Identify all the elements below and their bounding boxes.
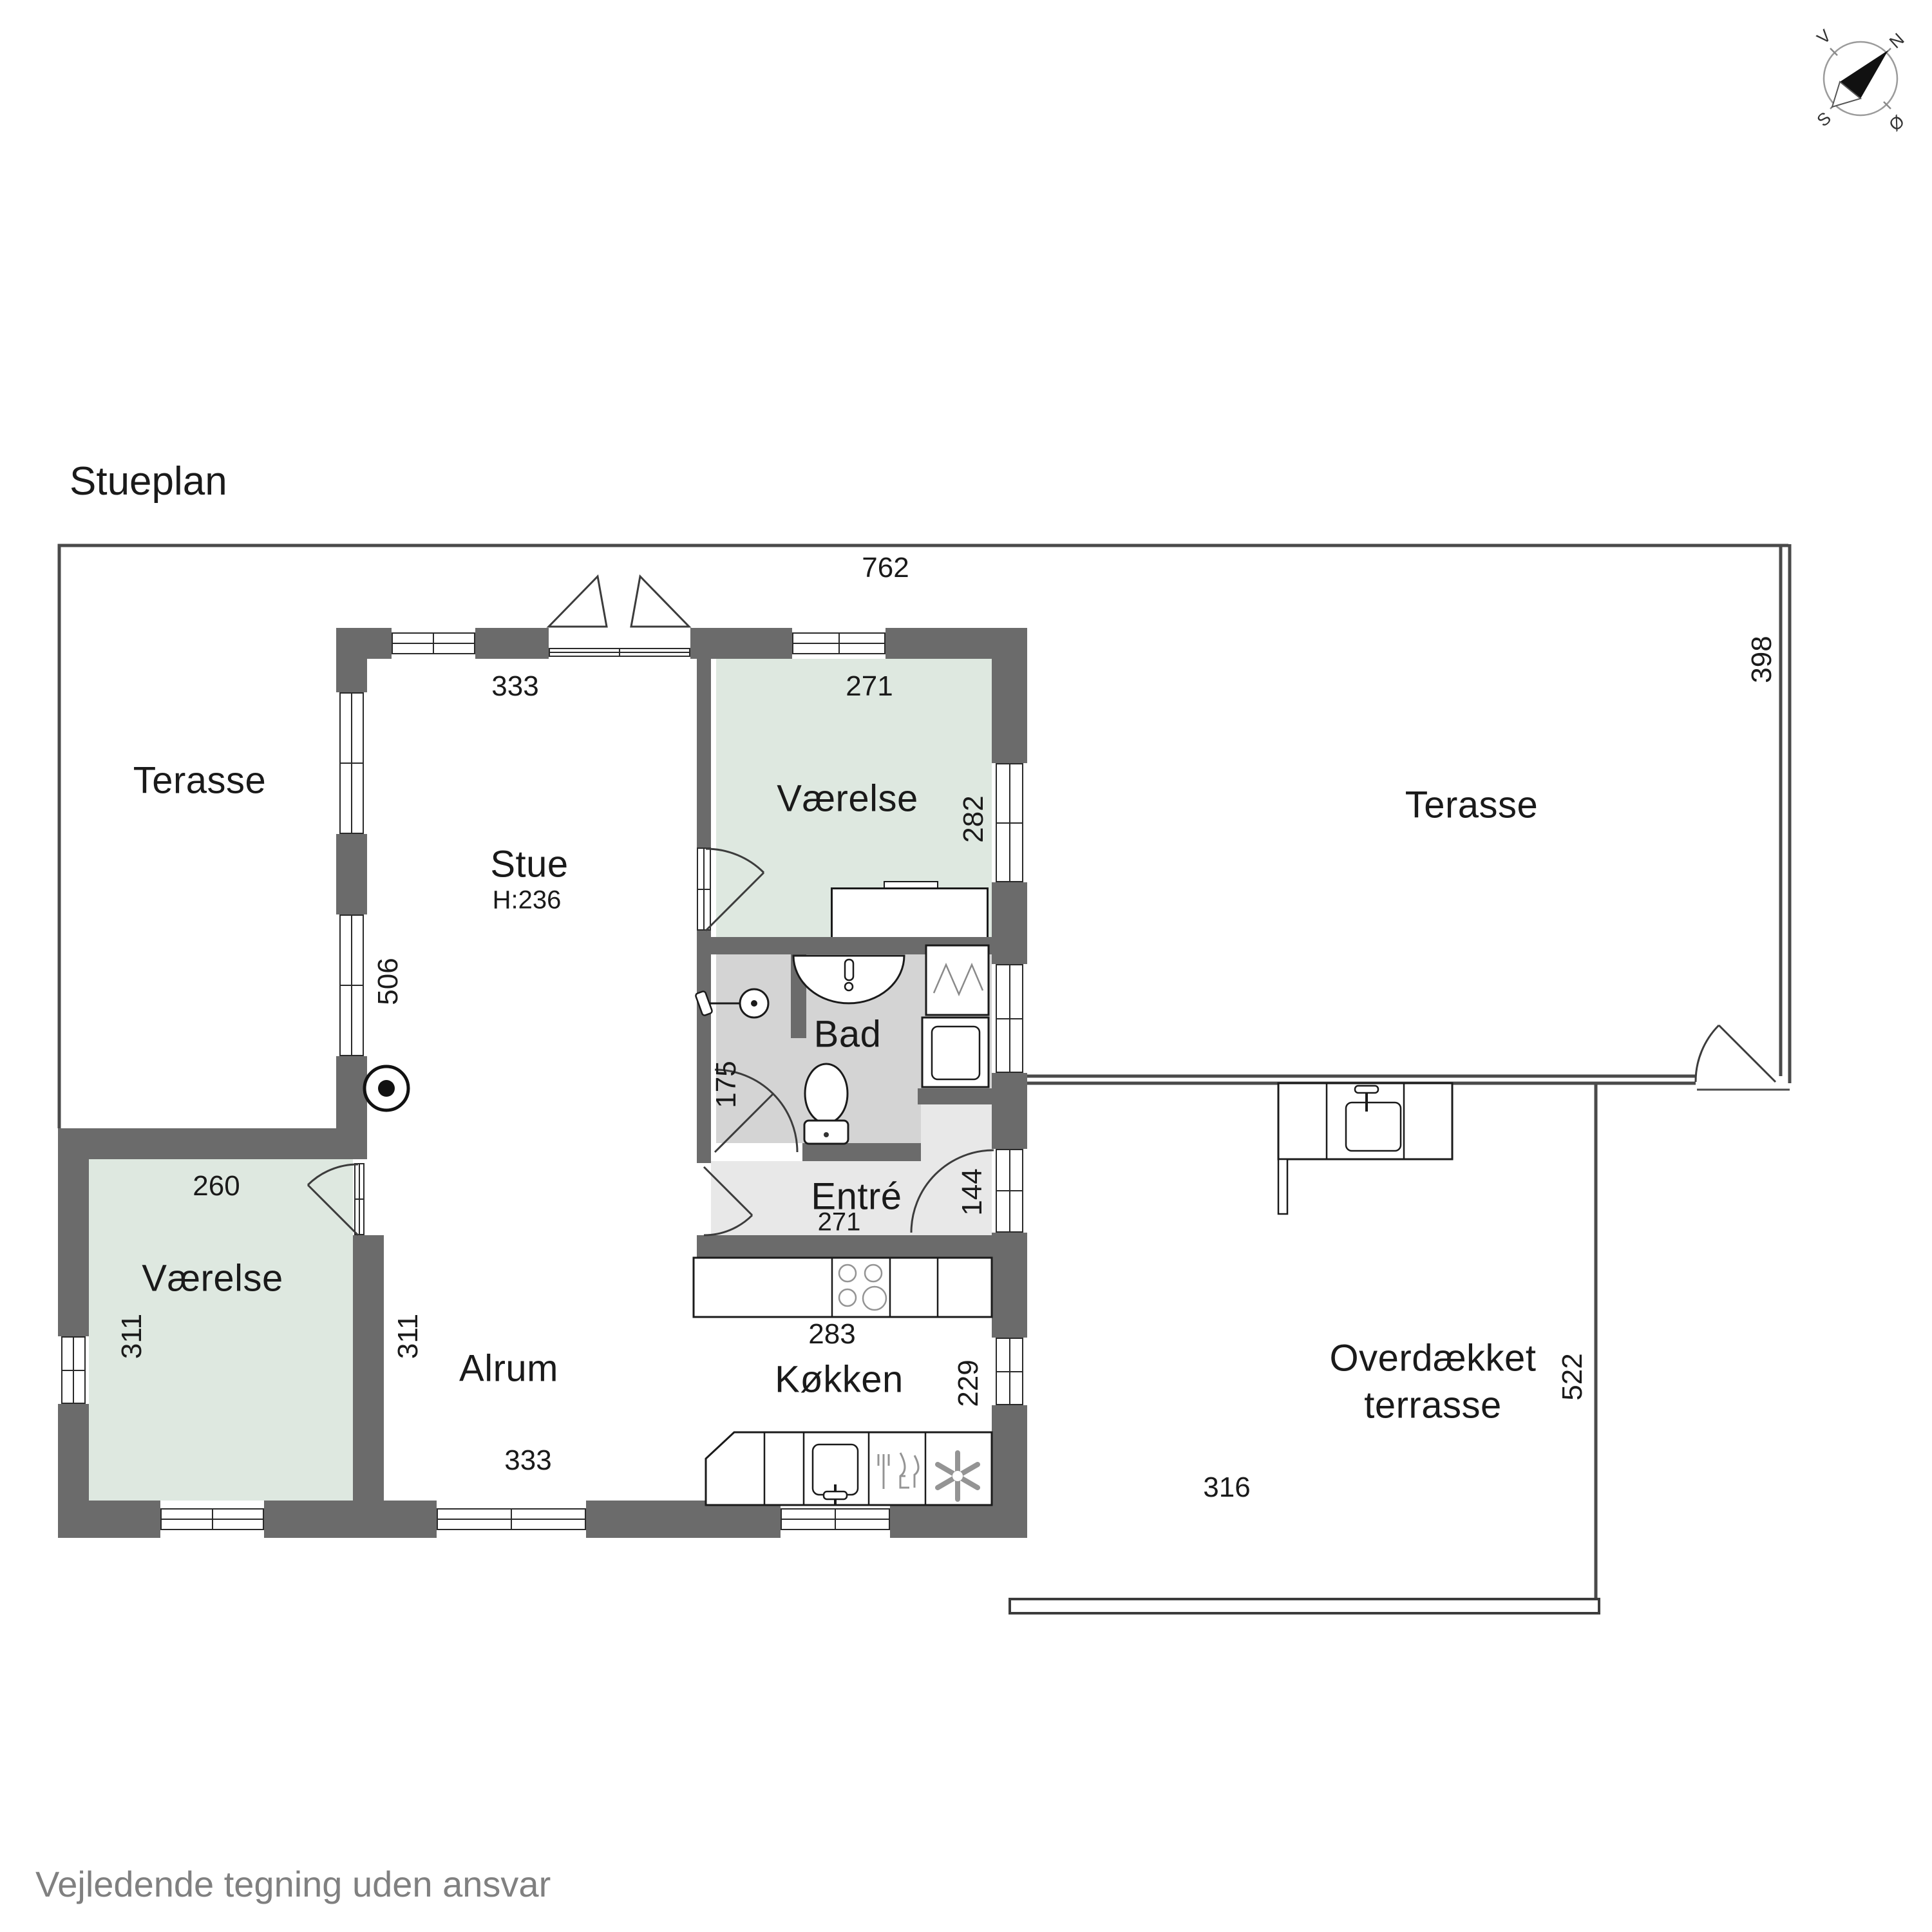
dim-vaerelse-top-height: 282 xyxy=(958,795,990,842)
kitchen-island xyxy=(694,1258,992,1317)
room-label-vaerelse-bottom: Værelse xyxy=(142,1257,283,1300)
french-doors xyxy=(549,576,689,627)
dim-entre-bottom: 271 xyxy=(818,1208,861,1237)
dim-vaerelse-bottom-width: 260 xyxy=(193,1170,240,1202)
outdoor-kitchen xyxy=(1278,1083,1452,1214)
dim-koekken-right: 229 xyxy=(952,1359,985,1406)
dim-vaerelse-top-width: 271 xyxy=(846,670,893,703)
dim-overdaekket-bottom: 316 xyxy=(1203,1472,1250,1504)
ceiling-height-label: H:236 xyxy=(493,886,562,915)
room-label-terrace-left: Terasse xyxy=(133,759,267,802)
bathroom-sink-icon xyxy=(793,956,904,1003)
room-label-overdaekket: Overdækket terrasse xyxy=(1291,1336,1575,1429)
dim-stue-top: 333 xyxy=(491,670,538,703)
wood-stove-icon xyxy=(365,1066,408,1110)
shower-cabin-icon xyxy=(926,945,989,1015)
plan-linework: N V S Ø xyxy=(0,0,1932,1932)
compass-rose-icon: N V S Ø xyxy=(1814,26,1909,135)
overdaekket-edge xyxy=(1010,1599,1599,1613)
room-label-vaerelse-top: Værelse xyxy=(777,777,918,820)
dim-island: 283 xyxy=(808,1318,855,1350)
room-label-stue: Stue xyxy=(490,843,568,886)
dim-terrace-right-height: 398 xyxy=(1746,636,1778,683)
page-title: Stueplan xyxy=(70,459,227,504)
dim-outer-top: 762 xyxy=(862,552,909,584)
room-label-terrace-right: Terasse xyxy=(1405,784,1539,827)
dim-entre-door: 144 xyxy=(956,1168,989,1215)
room-label-alrum: Alrum xyxy=(459,1347,558,1390)
floor-plan-page: N V S Ø Stueplan Vejledende tegning uden… xyxy=(0,0,1932,1932)
compass-south-label: S xyxy=(1814,108,1835,130)
dim-overdaekket-right: 522 xyxy=(1557,1353,1589,1400)
dim-alrum-bottom: 333 xyxy=(504,1444,551,1477)
kitchen-counter xyxy=(706,1432,992,1505)
room-label-bad: Bad xyxy=(814,1013,882,1056)
compass-north-label: N xyxy=(1886,30,1908,52)
toilet-icon xyxy=(804,1064,848,1144)
dim-vaerelse-bottom-outer: 311 xyxy=(392,1314,424,1359)
compass-east-label: Ø xyxy=(1885,111,1908,135)
washer-icon xyxy=(922,1018,989,1087)
dim-stue-left-height: 506 xyxy=(372,958,404,1005)
dim-vaerelse-bottom-inner: 311 xyxy=(116,1314,148,1359)
shower-icon xyxy=(695,989,768,1018)
dim-bad-height: 175 xyxy=(710,1061,743,1108)
compass-west-label: V xyxy=(1814,26,1835,48)
disclaimer: Vejledende tegning uden ansvar xyxy=(35,1863,551,1905)
room-label-koekken: Køkken xyxy=(775,1358,904,1401)
